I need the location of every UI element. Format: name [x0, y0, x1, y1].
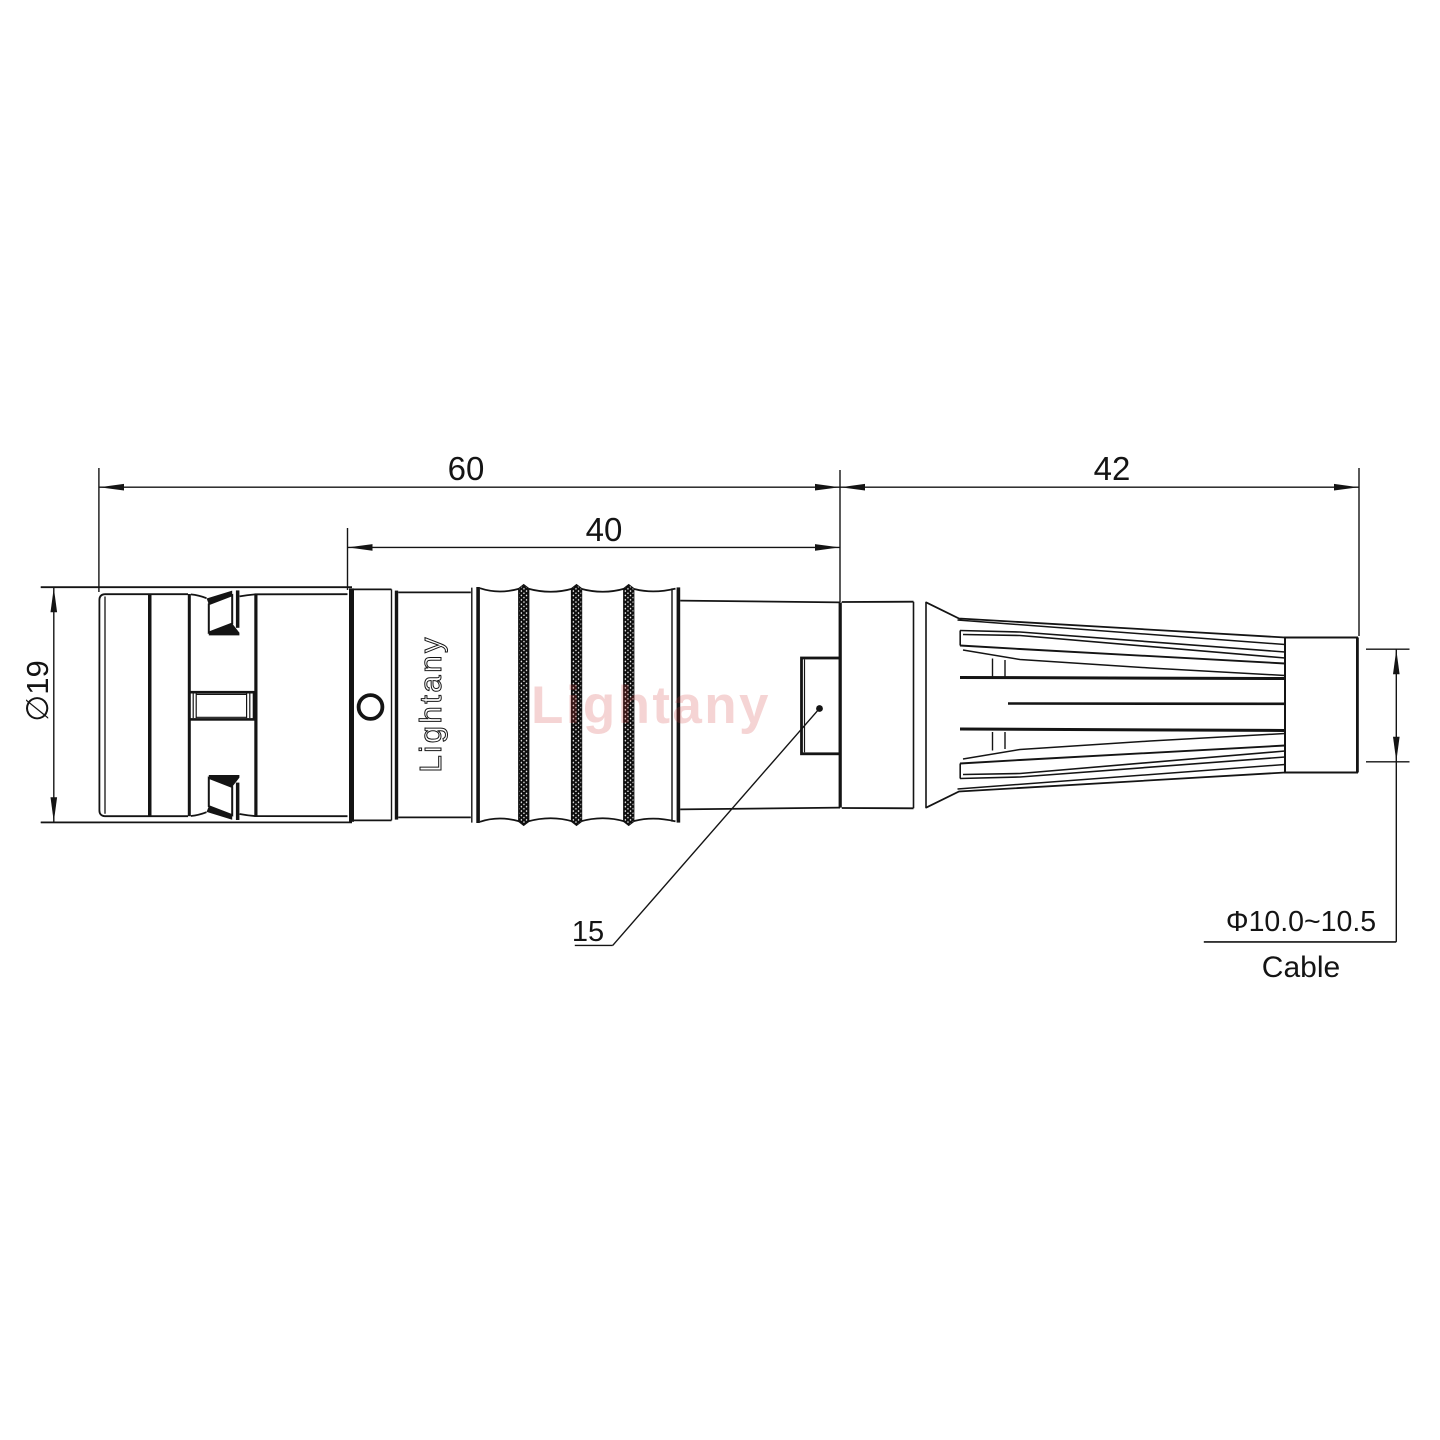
svg-text:Lightany: Lightany — [413, 637, 448, 773]
svg-text:∅19: ∅19 — [20, 660, 55, 722]
svg-text:Φ10.0~10.5: Φ10.0~10.5 — [1226, 906, 1376, 938]
svg-text:40: 40 — [586, 511, 623, 548]
svg-text:42: 42 — [1094, 450, 1131, 487]
svg-text:15: 15 — [572, 916, 604, 948]
svg-text:Cable: Cable — [1262, 951, 1340, 984]
svg-text:60: 60 — [448, 450, 485, 487]
